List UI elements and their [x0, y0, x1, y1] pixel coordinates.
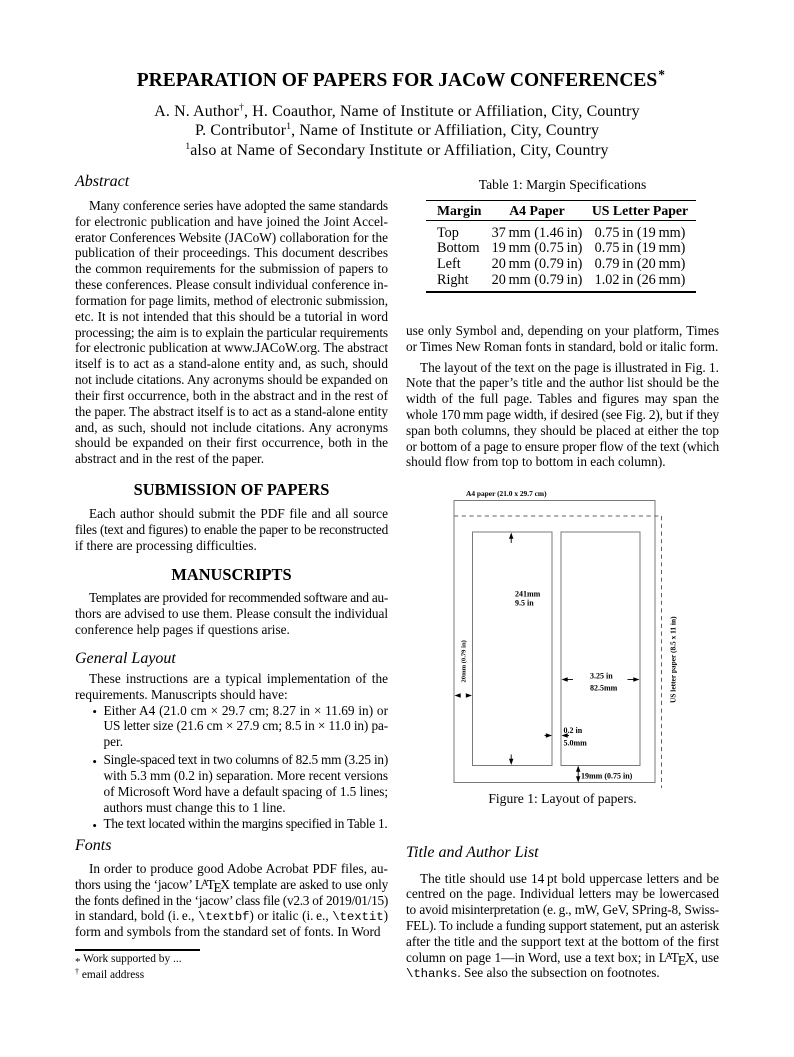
svg-text:9.5 in: 9.5 in: [515, 599, 534, 608]
svg-text:5.0mm: 5.0mm: [564, 739, 588, 748]
svg-text:82.5mm: 82.5mm: [590, 684, 618, 693]
svg-text:US letter paper (8.5 x 11 in): US letter paper (8.5 x 11 in): [669, 616, 678, 703]
svg-text:241mm: 241mm: [515, 590, 541, 599]
svg-text:0.2 in: 0.2 in: [564, 726, 583, 735]
svg-text:19mm (0.75 in): 19mm (0.75 in): [581, 772, 633, 781]
svg-text:3.25 in: 3.25 in: [590, 672, 613, 681]
svg-text:A4 paper (21.0 x 29.7 cm): A4 paper (21.0 x 29.7 cm): [466, 489, 547, 498]
svg-text:20mm (0.79 in): 20mm (0.79 in): [461, 640, 468, 682]
